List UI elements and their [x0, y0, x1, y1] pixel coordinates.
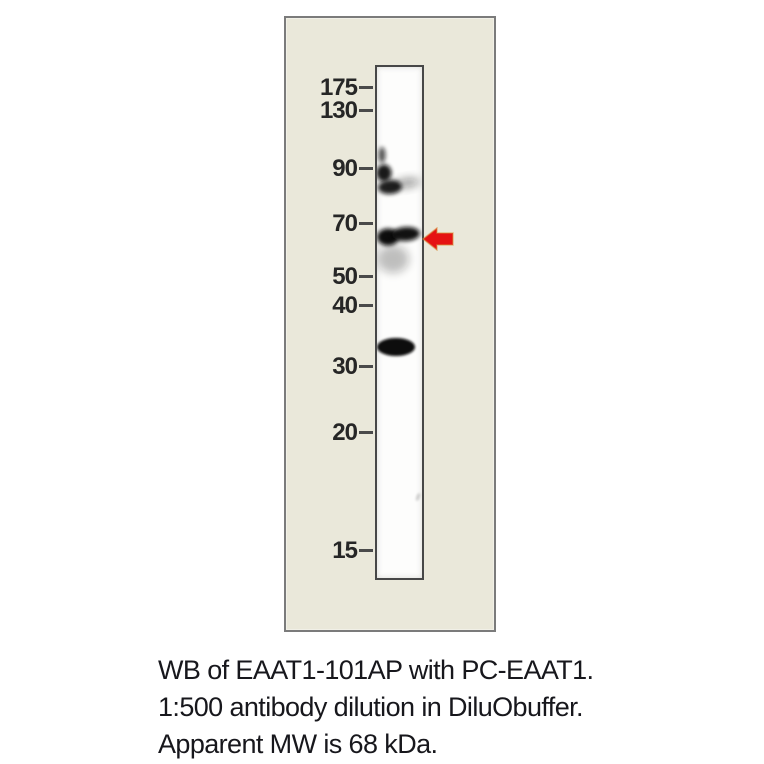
protein-bands — [377, 67, 422, 578]
band-90-streak — [379, 147, 386, 163]
mw-marker-tick — [359, 365, 373, 368]
band-90-blob — [377, 165, 392, 182]
band-pointer — [422, 227, 454, 251]
mw-marker-label: 50 — [286, 265, 357, 289]
caption-line-3: Apparent MW is 68 kDa. — [158, 726, 593, 763]
figure: 17513090705040302015 WB of EAAT1-101AP w… — [0, 0, 764, 764]
band-68-haze — [377, 245, 409, 273]
caption-line-1: WB of EAAT1-101AP with PC-EAAT1. — [158, 652, 593, 689]
mw-marker-tick — [359, 222, 373, 225]
mw-marker-label: 90 — [286, 157, 357, 181]
mw-marker-tick — [359, 549, 373, 552]
mw-marker-label: 40 — [286, 294, 357, 318]
blot-panel: 17513090705040302015 — [284, 16, 496, 632]
blot-lane — [375, 65, 424, 580]
band-33 — [377, 338, 415, 356]
mw-marker-tick — [359, 86, 373, 89]
mw-marker-tick — [359, 275, 373, 278]
figure-caption: WB of EAAT1-101AP with PC-EAAT1. 1:500 a… — [158, 652, 593, 763]
mw-marker-label: 20 — [286, 421, 357, 445]
speck — [415, 493, 421, 502]
mw-marker-label: 15 — [286, 539, 357, 563]
red-arrow-icon — [422, 227, 454, 251]
red-arrow-shape — [423, 228, 453, 250]
mw-marker-tick — [359, 304, 373, 307]
mw-marker-label: 130 — [286, 99, 357, 123]
caption-line-2: 1:500 antibody dilution in DiluObuffer. — [158, 689, 593, 726]
mw-marker-tick — [359, 431, 373, 434]
mw-marker-tick — [359, 109, 373, 112]
mw-marker-label: 70 — [286, 212, 357, 236]
mw-marker-tick — [359, 167, 373, 170]
mw-marker-label: 30 — [286, 355, 357, 379]
